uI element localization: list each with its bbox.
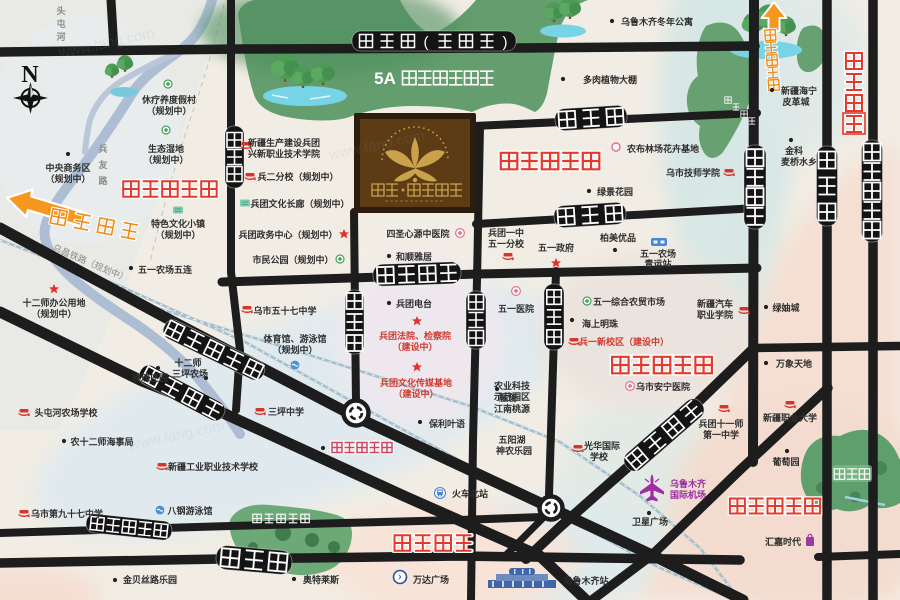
svg-text:头: 头 — [56, 5, 65, 16]
svg-text:（规划中）: （规划中） — [146, 105, 191, 116]
svg-text:学校: 学校 — [590, 451, 609, 462]
svg-text:中央商务区: 中央商务区 — [45, 162, 90, 173]
svg-text:新疆生产建设兵团: 新疆生产建设兵团 — [248, 137, 320, 148]
svg-text:河: 河 — [56, 31, 65, 42]
svg-text:（建设中）: （建设中） — [392, 341, 437, 352]
svg-text:兵: 兵 — [98, 143, 107, 154]
svg-text:五一农场五连: 五一农场五连 — [138, 264, 193, 275]
svg-text:职业学院: 职业学院 — [697, 309, 733, 320]
svg-text:万达广场: 万达广场 — [412, 574, 449, 585]
svg-text:市民公园（规划中）: 市民公园（规划中） — [252, 254, 333, 265]
svg-text:柏美优品: 柏美优品 — [600, 232, 636, 243]
svg-text:第一中学: 第一中学 — [703, 429, 739, 440]
svg-text:和顺雅居: 和顺雅居 — [395, 251, 432, 262]
svg-text:五一综合农贸市场: 五一综合农贸市场 — [593, 296, 665, 307]
svg-text:路: 路 — [98, 175, 108, 186]
svg-text:兵团政务中心（规划中）: 兵团政务中心（规划中） — [238, 229, 337, 240]
svg-text:乌市第九十七中学: 乌市第九十七中学 — [31, 508, 103, 519]
svg-text:生态湿地: 生态湿地 — [148, 143, 184, 154]
svg-text:兵团电台: 兵团电台 — [396, 298, 432, 309]
svg-text:国际机场: 国际机场 — [670, 489, 706, 500]
svg-text:屯: 屯 — [56, 18, 65, 29]
svg-text:乌市五十七中学: 乌市五十七中学 — [253, 305, 316, 316]
svg-text:万象天地: 万象天地 — [775, 358, 812, 369]
svg-text:乌鲁木齐: 乌鲁木齐 — [670, 478, 707, 489]
svg-text:五阳湖: 五阳湖 — [498, 434, 525, 445]
svg-text:三坪农场: 三坪农场 — [172, 368, 208, 379]
svg-text:新疆汽车: 新疆汽车 — [697, 298, 733, 309]
svg-text:玫瑰庄园: 玫瑰庄园 — [132, 372, 168, 383]
svg-text:五一分校: 五一分校 — [488, 238, 525, 249]
svg-text:皮革城: 皮革城 — [781, 96, 809, 107]
svg-text:融创: 融创 — [499, 392, 517, 403]
svg-text:兵二分校（规划中）: 兵二分校（规划中） — [257, 171, 338, 182]
svg-text:（规划中）: （规划中） — [272, 344, 317, 355]
svg-text:绿妯城: 绿妯城 — [772, 302, 799, 313]
svg-text:五一政府: 五一政府 — [538, 242, 574, 253]
svg-text:五一医院: 五一医院 — [498, 303, 534, 314]
svg-text:光华国际: 光华国际 — [583, 440, 620, 451]
svg-text:五一农场: 五一农场 — [640, 248, 676, 259]
svg-text:麦桥水乡: 麦桥水乡 — [781, 156, 817, 167]
svg-text:多肉植物大棚: 多肉植物大棚 — [583, 74, 637, 85]
svg-text:特色文化小镇: 特色文化小镇 — [151, 218, 205, 229]
svg-text:金科: 金科 — [784, 145, 803, 156]
svg-text:兵一新校区（建设中）: 兵一新校区（建设中） — [579, 336, 669, 347]
svg-text:（规划中）: （规划中） — [155, 229, 200, 240]
svg-text:体育馆、游泳馆: 体育馆、游泳馆 — [263, 333, 326, 344]
svg-text:火车北站: 火车北站 — [452, 488, 488, 499]
svg-text:兵团十一师: 兵团十一师 — [698, 418, 743, 429]
svg-text:绿景花园: 绿景花园 — [597, 186, 633, 197]
svg-text:兴新职业技术学院: 兴新职业技术学院 — [248, 148, 320, 159]
svg-text:汇嘉时代: 汇嘉时代 — [765, 536, 801, 547]
svg-text:兵团法院、检察院: 兵团法院、检察院 — [379, 330, 451, 341]
svg-text:（规划中）: （规划中） — [143, 154, 188, 165]
svg-text:友: 友 — [98, 159, 107, 170]
svg-text:农布林场花卉基地: 农布林场花卉基地 — [626, 143, 699, 154]
svg-text:（建设中）: （建设中） — [393, 388, 438, 399]
svg-text:四圣心源中医院: 四圣心源中医院 — [386, 228, 449, 239]
svg-text:八钢游泳馆: 八钢游泳馆 — [166, 505, 212, 516]
svg-text:十二师办公用地: 十二师办公用地 — [22, 297, 85, 308]
svg-text:保利叶语: 保利叶语 — [428, 418, 465, 429]
svg-text:乌鲁木齐站: 乌鲁木齐站 — [563, 575, 608, 586]
svg-text:乌市安宁医院: 乌市安宁医院 — [636, 381, 690, 392]
svg-text:金贝丝路乐园: 金贝丝路乐园 — [122, 574, 177, 585]
svg-text:兵团一中: 兵团一中 — [488, 227, 524, 238]
svg-text:卫星广场: 卫星广场 — [632, 516, 668, 527]
svg-text:新疆职业大学: 新疆职业大学 — [763, 412, 817, 423]
svg-text:农十二师海事局: 农十二师海事局 — [69, 436, 133, 447]
svg-text:（规划中）: （规划中） — [31, 308, 76, 319]
svg-text:兵团文化传媒基地: 兵团文化传媒基地 — [380, 377, 452, 388]
svg-text:青运站: 青运站 — [644, 258, 671, 269]
svg-text:(: ( — [424, 34, 429, 51]
svg-text:葡萄园: 葡萄园 — [771, 456, 799, 467]
svg-text:奥特莱斯: 奥特莱斯 — [302, 574, 339, 585]
svg-text:): ) — [503, 34, 508, 51]
svg-text:头屯河农场学校: 头屯河农场学校 — [34, 407, 98, 418]
svg-text:神农乐园: 神农乐园 — [496, 445, 532, 456]
svg-text:三坪中学: 三坪中学 — [268, 406, 304, 417]
svg-text:十二师: 十二师 — [174, 357, 201, 368]
svg-text:兵团文化长廊（规划中）: 兵团文化长廊（规划中） — [250, 198, 349, 209]
svg-text:（规划中）: （规划中） — [45, 173, 90, 184]
svg-text:海上明珠: 海上明珠 — [582, 318, 619, 329]
svg-text:新疆海宁: 新疆海宁 — [781, 85, 817, 96]
svg-text:江南桃源: 江南桃源 — [494, 403, 530, 414]
svg-text:乌市技师学院: 乌市技师学院 — [666, 167, 720, 178]
svg-text:乌鲁木齐冬年公寓: 乌鲁木齐冬年公寓 — [621, 16, 693, 27]
svg-text:5A: 5A — [374, 69, 396, 88]
svg-text:新疆工业职业技术学校: 新疆工业职业技术学校 — [168, 461, 259, 472]
svg-text:休疗养度假村: 休疗养度假村 — [141, 94, 196, 105]
